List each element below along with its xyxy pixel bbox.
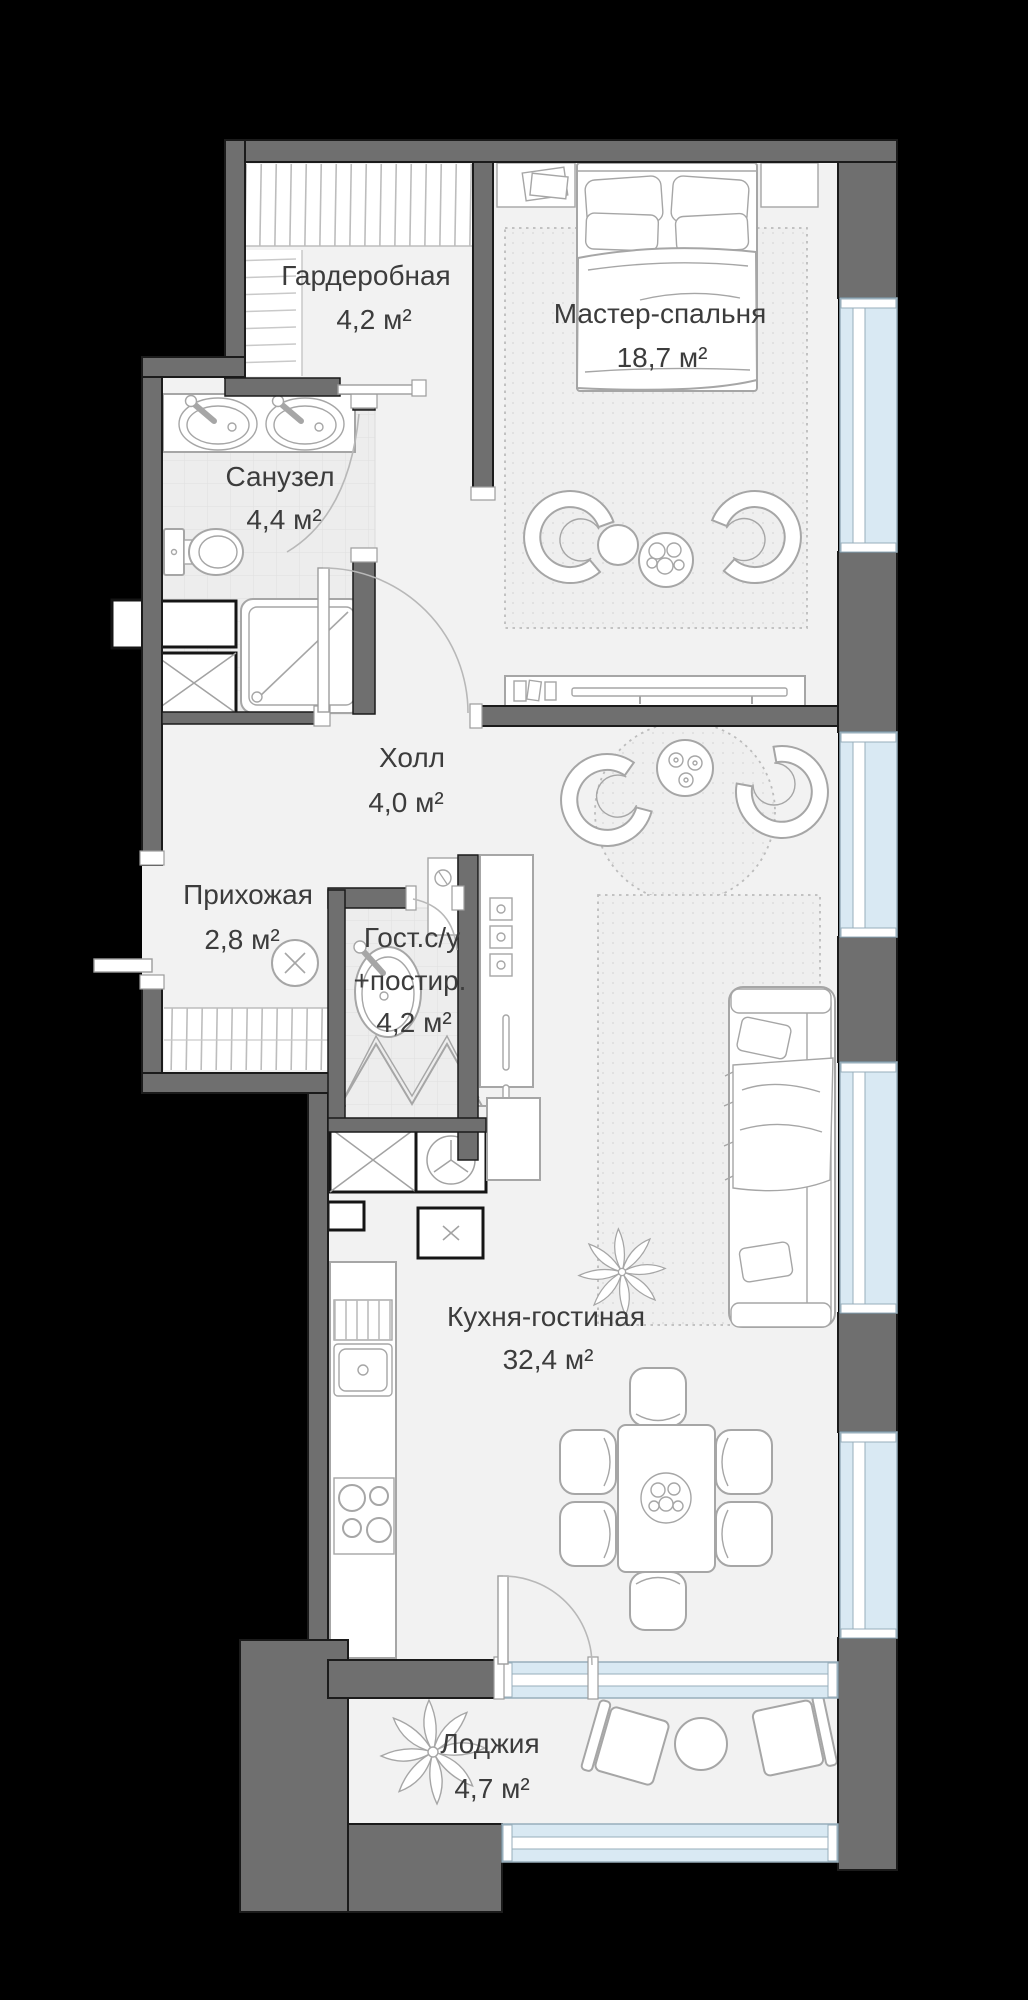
floor-plan-canvas (0, 0, 1028, 2000)
entry-area: 2,8 м² (204, 924, 279, 956)
kitchen-sink (334, 1344, 392, 1396)
bathroom-area: 4,4 м² (246, 504, 321, 536)
entry-label: Прихожая (183, 879, 313, 911)
loggia-table (675, 1718, 727, 1770)
master-bedroom-area: 18,7 м² (617, 342, 708, 374)
guest-wc-area: 4,2 м² (376, 1007, 451, 1039)
hall-label: Холл (379, 742, 445, 774)
dining-table (618, 1425, 715, 1572)
shower (241, 599, 362, 713)
kitchen-counter (330, 1262, 396, 1658)
loggia-label: Лоджия (440, 1728, 539, 1760)
living-window-middle (840, 1062, 897, 1313)
loggia-glazing-inner (502, 1662, 838, 1698)
wardrobe-area: 4,2 м² (336, 304, 411, 336)
living-window-upper (840, 732, 897, 937)
bedroom-window (840, 298, 897, 552)
floor-plan-page: Гардеробная 4,2 м² Мастер-спальня 18,7 м… (0, 0, 1028, 2000)
guest-wc-label-2: +постир. (354, 965, 467, 997)
wardrobe-rail (245, 164, 473, 246)
sofa (724, 987, 835, 1327)
bathroom-vanity (163, 394, 355, 452)
bedside-console-right (761, 163, 818, 207)
tv-console (505, 676, 805, 706)
master-bedroom-label: Мастер-спальня (554, 298, 766, 330)
kitchen-living-label: Кухня-гостиная (447, 1301, 645, 1333)
loggia-glazing-outer (502, 1824, 838, 1862)
coffee-table (487, 1098, 540, 1180)
toilet (164, 529, 243, 575)
hall-area: 4,0 м² (368, 787, 443, 819)
guest-wc-label-1: Гост.с/у (364, 922, 460, 954)
bedroom-pouf (598, 525, 638, 565)
bedroom-side-table (639, 533, 693, 587)
living-window-lower (840, 1432, 897, 1638)
coat-rack (164, 1008, 328, 1070)
lounge-table (657, 740, 713, 796)
loggia-area: 4,7 м² (454, 1773, 529, 1805)
stove (334, 1478, 394, 1554)
bathroom-label: Санузел (225, 461, 334, 493)
wardrobe-label: Гардеробная (281, 260, 450, 292)
bedside-console-left (497, 163, 575, 207)
kitchen-living-area: 32,4 м² (503, 1344, 594, 1376)
